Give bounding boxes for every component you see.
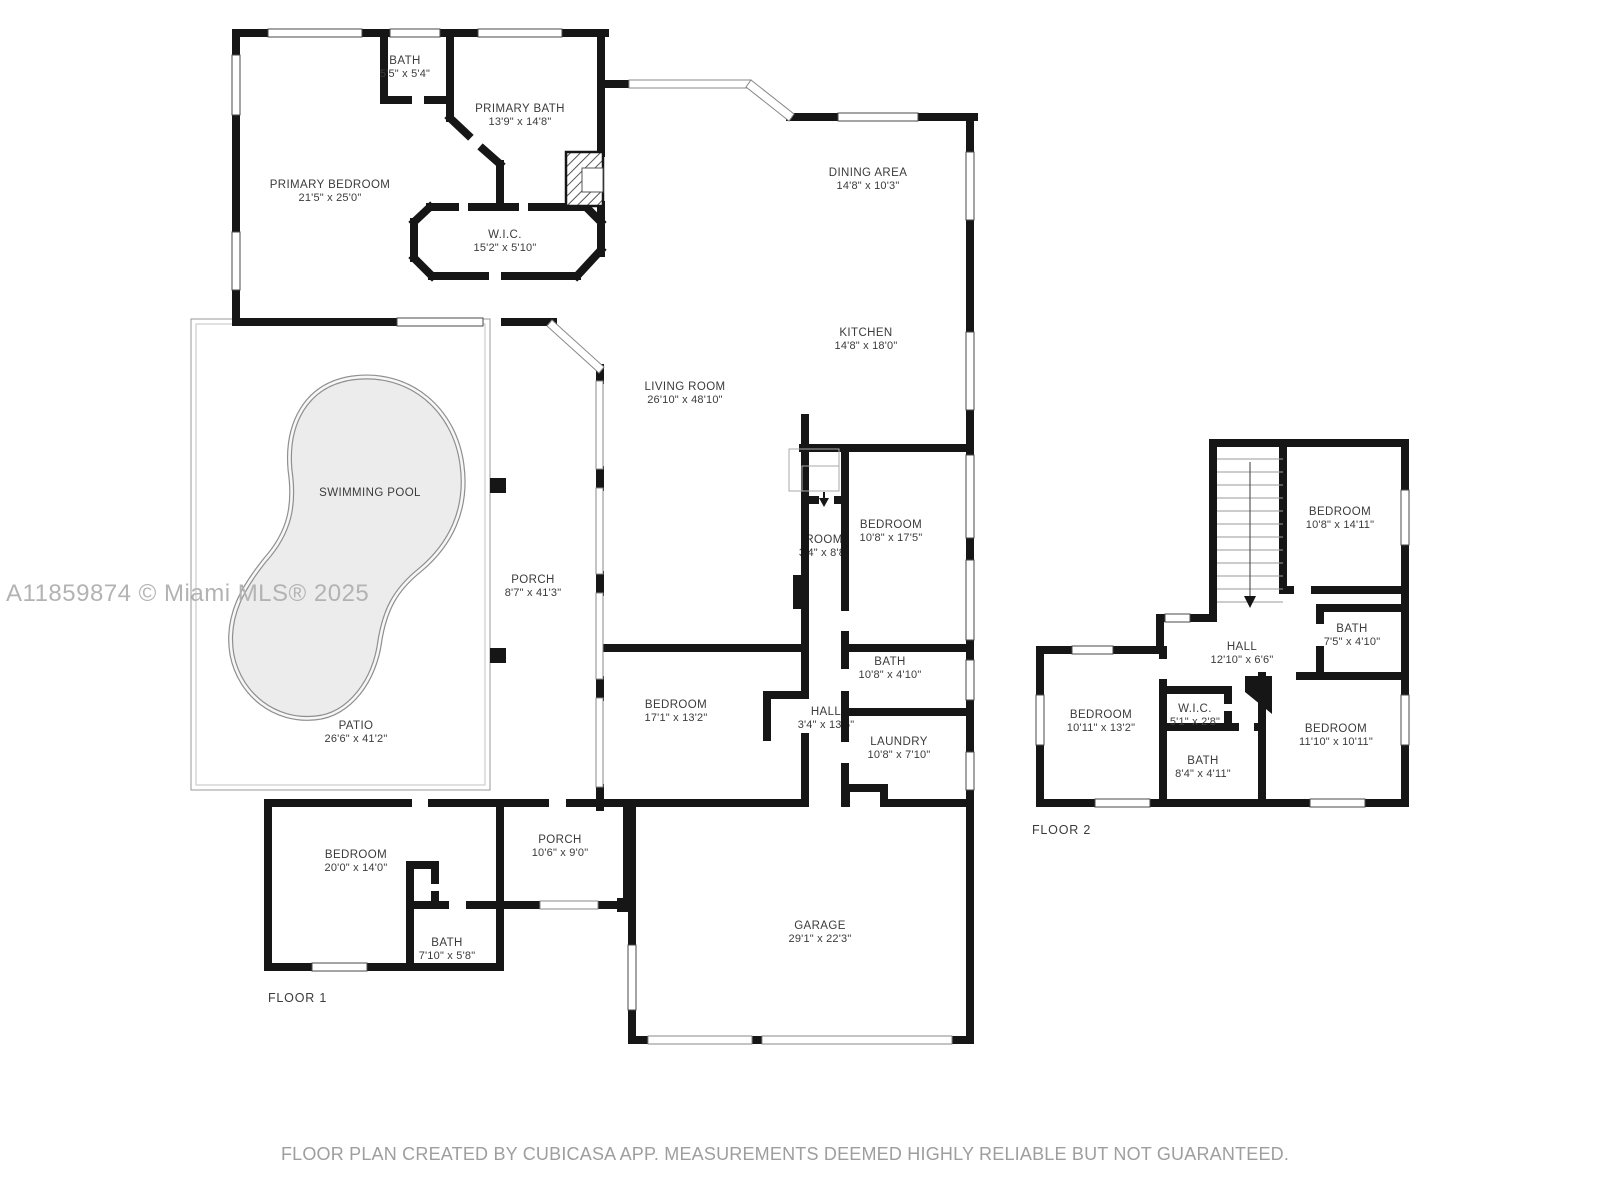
room-dims: 5'5" x 5'4" (380, 68, 430, 80)
porch-post (490, 478, 506, 493)
room-dims: 12'10" x 6'6" (1211, 654, 1274, 666)
room-dims: 10'8" x 7'10" (868, 749, 931, 761)
room-label: PRIMARY BATH (475, 103, 565, 115)
room-label: BATH (1187, 755, 1218, 767)
room-dims: 17'1" x 13'2" (645, 712, 708, 724)
room-label: BEDROOM (1305, 723, 1367, 735)
room-label: PATIO (339, 720, 374, 732)
pool-label: SWIMMING POOL (319, 487, 421, 499)
room-label: HALL (1227, 641, 1258, 653)
room-dims: 26'10" x 48'10" (647, 394, 723, 406)
room-label: LAUNDRY (870, 736, 928, 748)
room-label: LIVING ROOM (644, 381, 725, 393)
floor1-label: FLOOR 1 (268, 991, 327, 1005)
room-label: ROOM (805, 534, 842, 546)
room-label: BEDROOM (860, 519, 922, 531)
room-label: BEDROOM (1309, 506, 1371, 518)
floorplan-drawing: ROOM 3'4" x 8'8" HALL 3'4" x 13'6" (0, 0, 1600, 1200)
room-label: KITCHEN (839, 327, 892, 339)
footer-disclaimer: FLOOR PLAN CREATED BY CUBICASA APP. MEAS… (281, 1144, 1289, 1164)
room-label: BATH (1336, 623, 1367, 635)
room-dims: 8'4" x 4'11" (1175, 768, 1231, 780)
wall-block (617, 898, 633, 912)
room-dims: 8'7" x 41'3" (505, 587, 562, 599)
room-label: BATH (389, 55, 420, 67)
room-dims: 7'10" x 5'8" (419, 950, 476, 962)
hall-label: HALL (811, 706, 842, 718)
room-label: BEDROOM (1070, 709, 1132, 721)
room-label: W.I.C. (1178, 703, 1212, 715)
stairs-icon-floor2 (1217, 459, 1283, 608)
room-dims: 26'6" x 41'2" (325, 733, 388, 745)
room-dims: 11'10" x 10'11" (1299, 736, 1373, 748)
fireplace-icon (566, 152, 603, 206)
room-dims: 13'9" x 14'8" (489, 116, 552, 128)
room-label: BATH (874, 656, 905, 668)
room-dims: 20'0" x 14'0" (325, 862, 388, 874)
room-dims: 10'8" x 14'11" (1306, 519, 1374, 531)
room-dims: 29'1" x 22'3" (789, 933, 852, 945)
room-label: BATH (431, 937, 462, 949)
room-dims: 10'8" x 17'5" (860, 532, 923, 544)
room-dims: 14'8" x 10'3" (837, 180, 900, 192)
room-dims: 14'8" x 18'0" (835, 340, 898, 352)
porch-post (490, 648, 506, 663)
room-label: PORCH (538, 834, 582, 846)
room-dims: 21'5" x 25'0" (299, 192, 362, 204)
windows-floor2 (1036, 490, 1409, 807)
room-label: BEDROOM (325, 849, 387, 861)
swimming-pool-shape (231, 377, 464, 718)
room-dims: 5'1" x 2'8" (1170, 716, 1220, 728)
room-label: BEDROOM (645, 699, 707, 711)
floorplan-canvas: ROOM 3'4" x 8'8" HALL 3'4" x 13'6" (0, 0, 1600, 1200)
room-label: GARAGE (794, 920, 846, 932)
room-dims: 7'5" x 4'10" (1324, 636, 1381, 648)
floor2-label: FLOOR 2 (1032, 823, 1091, 837)
room-label: PORCH (511, 574, 555, 586)
mls-watermark: A11859874 © Miami MLS® 2025 (6, 580, 369, 607)
room-dims: 10'11" x 13'2" (1067, 722, 1135, 734)
room-dims: 15'2" x 5'10" (474, 242, 537, 254)
room-label: DINING AREA (829, 167, 908, 179)
room-label: W.I.C. (488, 229, 522, 241)
room-dims: 10'8" x 4'10" (859, 669, 922, 681)
room-dims: 10'6" x 9'0" (532, 847, 589, 859)
room-label: PRIMARY BEDROOM (270, 179, 391, 191)
wall-block (793, 575, 807, 609)
